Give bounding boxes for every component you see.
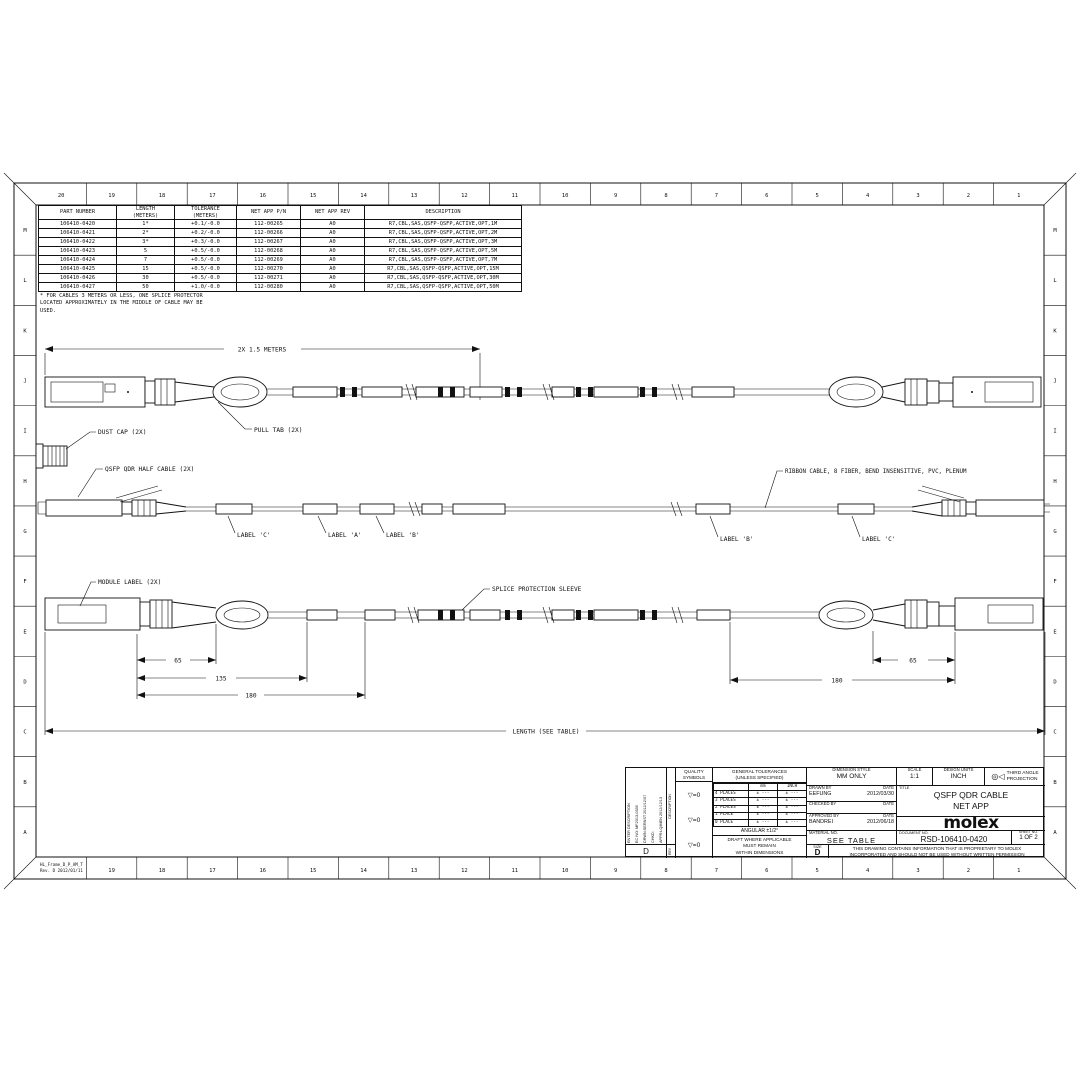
- title-cell: TITLE QSFP QDR CABLE NET APP: [896, 785, 1045, 816]
- label-c-right: LABEL 'C': [862, 536, 896, 543]
- zone-number: 1: [1017, 868, 1020, 874]
- table-cell: R7,CBL,SAS,QSFP-QSFP,ACTIVE,OPT,1M: [365, 220, 522, 229]
- table-cell: +0.5/-0.0: [175, 274, 237, 283]
- zone-letter: G: [1053, 529, 1056, 535]
- dimension-style-value: MM ONLY: [807, 773, 896, 780]
- qsfp-connector-right: [819, 598, 1043, 630]
- design-units-cell: DESIGN UNITS INCH: [932, 768, 984, 785]
- table-cell: +0.3/-0.0: [175, 238, 237, 247]
- table-row: 106410-042750+1.0/-0.0112-00280A0R7,CBL,…: [39, 283, 522, 292]
- table-cell: +1.0/-0.0: [175, 283, 237, 292]
- approved-by-cell: APPROVED BYDATE BANDREI2012/06/18: [806, 813, 896, 830]
- splice-protector-note: * FOR CABLES 3 METERS OR LESS, ONE SPLIC…: [40, 293, 203, 315]
- label-c-left: LABEL 'C': [237, 532, 271, 539]
- tolerance-col-mm: mm: [749, 784, 778, 791]
- table-row: 106410-04201*+0.1/-0.0112-00265A0R7,CBL,…: [39, 220, 522, 229]
- rev-enter-description: ENTER DESCRIPTION: [628, 769, 632, 843]
- table-row: 3 PLACES± ---± ---: [714, 798, 807, 805]
- zone-number: 7: [715, 193, 718, 199]
- table-cell: ± ---: [749, 791, 778, 798]
- table-cell: 106410-0426: [39, 274, 117, 283]
- zone-number: 17: [209, 868, 216, 874]
- table-cell: 1*: [117, 220, 175, 229]
- drawing-sheet: HL_Frame_D_P_AM_T Rev. D 2012/01/11 2019…: [0, 0, 1080, 1080]
- drawn-by-cell: DRAWN BYDATE EEFUNG2012/03/30: [806, 785, 896, 801]
- zone-letter: J: [23, 379, 26, 385]
- proprietary-note: THIS DRAWING CONTAINS INFORMATION THAT I…: [828, 844, 1045, 858]
- qsfp-connector-right: [829, 377, 1041, 407]
- quality-symbol: ▽=0: [688, 791, 700, 799]
- table-row: 106410-04223*+0.3/-0.0112-00267A0R7,CBL,…: [39, 238, 522, 247]
- dim-135: 135: [215, 676, 226, 683]
- table-cell: 106410-0427: [39, 283, 117, 292]
- molex-logo: molex: [896, 816, 1045, 830]
- zone-letter: C: [1053, 730, 1056, 736]
- zone-letter: E: [23, 629, 26, 635]
- dim-2x-1p5-meters: 2X 1.5 METERS: [238, 347, 287, 354]
- table-cell: A0: [301, 247, 365, 256]
- rev-drwn: DRWN:SERNST 2012/12/07: [644, 769, 648, 843]
- zone-number: 6: [765, 868, 768, 874]
- view-mid-half-cables: QSFP QDR HALF CABLE (2X) RIBBON CABLE, 8…: [38, 466, 1050, 543]
- dust-cap: [36, 444, 67, 468]
- table-cell: 106410-0420: [39, 220, 117, 229]
- document-no-value: RSD-106410-0420: [897, 835, 1011, 844]
- date-label: DATE: [883, 802, 894, 807]
- drawing-svg: HL_Frame_D_P_AM_T Rev. D 2012/01/11 2019…: [0, 0, 1080, 1080]
- approved-date: 2012/06/18: [867, 819, 894, 825]
- zone-letter: M: [23, 228, 27, 234]
- zone-letter: B: [23, 780, 27, 786]
- zone-number: 11: [511, 868, 518, 874]
- zone-number: 2: [967, 868, 970, 874]
- zone-number: 16: [259, 193, 266, 199]
- zone-number: 2: [967, 193, 970, 199]
- table-cell: A0: [301, 283, 365, 292]
- quality-symbols: ▽=0 ▽=0 ▽=0: [675, 781, 712, 858]
- table-cell: 106410-0422: [39, 238, 117, 247]
- table-cell: ± ---: [749, 812, 778, 819]
- zone-letter: K: [1053, 328, 1057, 334]
- module-label-callout: MODULE LABEL (2X): [98, 579, 161, 586]
- zone-letter: C: [23, 730, 26, 736]
- zone-number: 20: [58, 193, 65, 199]
- table-cell: 106410-0425: [39, 265, 117, 274]
- table-cell: 112-00265: [237, 220, 301, 229]
- quality-symbol: ▽=0: [688, 816, 700, 824]
- zone-number: 10: [562, 868, 569, 874]
- qsfp-connector-left: [45, 598, 268, 630]
- zone-number: 5: [816, 868, 819, 874]
- dim-180-right: 180: [831, 678, 842, 685]
- table-row: 106410-04235+0.5/-0.0112-00268A0R7,CBL,S…: [39, 247, 522, 256]
- zone-number: 8: [664, 868, 667, 874]
- half-cable-label: QSFP QDR HALF CABLE (2X): [105, 466, 194, 473]
- material-no-cell: MATERIAL NO. SEE TABLE: [806, 830, 896, 844]
- zone-letter: A: [23, 830, 27, 836]
- projection-cell: ◎◁ THIRD ANGLE PROJECTION: [984, 768, 1045, 785]
- quality-symbols-header: QUALITY SYMBOLS: [675, 768, 712, 781]
- zone-letter: A: [1053, 830, 1057, 836]
- tolerances-body: 4 PLACES± ---± ---3 PLACES± ---± ---2 PL…: [714, 791, 807, 826]
- zone-letter: I: [1053, 429, 1056, 435]
- zone-letter: D: [23, 679, 26, 685]
- label-b-right: LABEL 'B': [720, 536, 754, 543]
- parts-table-header-row: PART NUMBER LENGTH (METERS) TOLERANCE (M…: [39, 206, 522, 220]
- projection-label: THIRD ANGLE PROJECTION: [1007, 771, 1039, 782]
- table-cell: +0.2/-0.0: [175, 229, 237, 238]
- rev-ec-no: EC NO: MF2013-0339: [636, 769, 640, 843]
- table-cell: R7,CBL,SAS,QSFP-QSFP,ACTIVE,OPT,50M: [365, 283, 522, 292]
- table-cell: ± ---: [749, 805, 778, 812]
- zone-number: 1: [1017, 193, 1020, 199]
- dust-cap-label: DUST CAP (2X): [98, 429, 146, 436]
- table-cell: R7,CBL,SAS,QSFP-QSFP,ACTIVE,OPT,2M: [365, 229, 522, 238]
- zone-letter: F: [23, 579, 26, 585]
- table-cell: 4 PLACES: [714, 791, 749, 798]
- zone-number: 10: [562, 193, 569, 199]
- table-cell: 5: [117, 247, 175, 256]
- col-description: DESCRIPTION: [365, 206, 522, 220]
- description-column: DESCRIPTION: [666, 768, 675, 844]
- table-cell: R7,CBL,SAS,QSFP-QSFP,ACTIVE,OPT,3M: [365, 238, 522, 247]
- zone-number: 11: [511, 193, 518, 199]
- parts-table-body: 106410-04201*+0.1/-0.0112-00265A0R7,CBL,…: [39, 220, 522, 292]
- drawn-by-name: EEFUNG: [809, 791, 831, 797]
- half-cable-connector-left: [38, 486, 186, 516]
- table-cell: A0: [301, 238, 365, 247]
- zone-letter: J: [1053, 379, 1056, 385]
- table-cell: 112-00268: [237, 247, 301, 256]
- table-cell: 7: [117, 256, 175, 265]
- col-length: LENGTH (METERS): [117, 206, 175, 220]
- zone-letter: K: [23, 328, 27, 334]
- rev-appr: APPR:LQIMEN 2012/12/13: [660, 769, 664, 843]
- table-row: 2 PLACES± ---± ---: [714, 805, 807, 812]
- document-no-cell: DOCUMENT NO. RSD-106410-0420: [896, 830, 1011, 844]
- zone-number: 3: [916, 193, 919, 199]
- pull-tab-label: PULL TAB (2X): [254, 427, 302, 434]
- zone-letter: L: [23, 278, 27, 284]
- table-cell: 15: [117, 265, 175, 274]
- table-cell: A0: [301, 265, 365, 274]
- rev-column: REV: [666, 844, 675, 858]
- description-label: DESCRIPTION: [669, 794, 673, 819]
- col-part-number: PART NUMBER: [39, 206, 117, 220]
- tolerances-table: mm INCH 4 PLACES± ---± ---3 PLACES± ---±…: [712, 782, 806, 826]
- zone-letter: G: [23, 529, 26, 535]
- dim-length-see-table: LENGTH (SEE TABLE): [512, 729, 579, 736]
- view-bottom-dimensioned: MODULE LABEL (2X) SPLICE PROTECTION SLEE…: [45, 579, 1045, 736]
- zone-number: 6: [765, 193, 768, 199]
- zone-number: 18: [159, 868, 166, 874]
- angular-tolerance: ANGULAR ±1/2°: [712, 826, 806, 835]
- dim-180-left: 180: [245, 693, 256, 700]
- zone-number: 16: [259, 868, 266, 874]
- table-cell: 2 PLACES: [714, 805, 749, 812]
- dim-65-left: 65: [174, 658, 182, 665]
- table-row: 106410-04212*+0.2/-0.0112-00266A0R7,CBL,…: [39, 229, 522, 238]
- quality-symbol: ▽=0: [688, 841, 700, 849]
- zone-letter: B: [1053, 780, 1057, 786]
- scale-cell: SCALE 1:1: [896, 768, 932, 785]
- col-net-app-rev: NET APP REV: [301, 206, 365, 220]
- table-cell: 112-00269: [237, 256, 301, 265]
- checked-by-label: CHECKED BY: [809, 802, 836, 807]
- table-cell: ± ---: [778, 791, 807, 798]
- frame-ref: HL_Frame_D_P_AM_T: [40, 862, 83, 867]
- table-cell: R7,CBL,SAS,QSFP-QSFP,ACTIVE,OPT,7M: [365, 256, 522, 265]
- table-cell: A0: [301, 220, 365, 229]
- zone-number: 3: [916, 868, 919, 874]
- table-cell: ± ---: [749, 798, 778, 805]
- table-cell: 2*: [117, 229, 175, 238]
- view-top-cable-assembly: 2X 1.5 METERS: [36, 347, 1041, 469]
- table-cell: 50: [117, 283, 175, 292]
- tolerance-col-inch: INCH: [778, 784, 807, 791]
- zone-number: 18: [159, 193, 166, 199]
- table-cell: 112-00270: [237, 265, 301, 274]
- zone-letter: E: [1053, 629, 1056, 635]
- zone-number: 19: [108, 193, 115, 199]
- tolerances-header-row: mm INCH: [714, 784, 807, 791]
- zone-letter: H: [23, 479, 26, 485]
- qsfp-connector-left: [45, 377, 267, 407]
- material-no-value: SEE TABLE: [807, 836, 896, 844]
- table-cell: +0.5/-0.0: [175, 256, 237, 265]
- scale-value: 1:1: [897, 773, 932, 780]
- table-cell: A0: [301, 274, 365, 283]
- zone-number: 13: [411, 868, 418, 874]
- sheet-no-value: 1 OF 2: [1012, 835, 1045, 841]
- table-cell: 112-00271: [237, 274, 301, 283]
- zone-letter: L: [1053, 278, 1057, 284]
- zone-number: 12: [461, 868, 468, 874]
- dim-65-right: 65: [909, 658, 917, 665]
- table-cell: ± ---: [778, 805, 807, 812]
- zone-number: 14: [360, 868, 367, 874]
- zone-number: 5: [816, 193, 819, 199]
- table-cell: +0.5/-0.0: [175, 265, 237, 274]
- col-tolerance: TOLERANCE (METERS): [175, 206, 237, 220]
- third-angle-projection-icon: ◎◁: [991, 772, 1004, 781]
- rev-label: REV: [669, 848, 672, 855]
- size-value: D: [807, 849, 828, 857]
- label-b-left: LABEL 'B': [386, 532, 420, 539]
- table-cell: 106410-0424: [39, 256, 117, 265]
- table-cell: 112-00267: [237, 238, 301, 247]
- ribbon-cable-label: RIBBON CABLE, 8 FIBER, BEND INSENSITIVE,…: [785, 469, 967, 475]
- table-cell: +0.1/-0.0: [175, 220, 237, 229]
- table-cell: R7,CBL,SAS,QSFP-QSFP,ACTIVE,OPT,30M: [365, 274, 522, 283]
- revision-block: ENTER DESCRIPTION EC NO: MF2013-0339 DRW…: [626, 768, 666, 844]
- design-units-value: INCH: [933, 773, 984, 780]
- table-cell: 3 PLACES: [714, 798, 749, 805]
- zone-number: 9: [614, 193, 617, 199]
- parts-table: PART NUMBER LENGTH (METERS) TOLERANCE (M…: [38, 205, 522, 292]
- table-cell: A0: [301, 256, 365, 265]
- dimension-style-cell: DIMENSION STYLE MM ONLY: [806, 768, 896, 785]
- zone-number: 4: [866, 193, 870, 199]
- label-a: LABEL 'A': [328, 532, 362, 539]
- zone-number: 8: [664, 193, 667, 199]
- zone-letter: H: [1053, 479, 1056, 485]
- zone-number: 14: [360, 193, 367, 199]
- table-cell: 112-00266: [237, 229, 301, 238]
- table-row: 106410-042515+0.5/-0.0112-00270A0R7,CBL,…: [39, 265, 522, 274]
- zone-number: 4: [866, 868, 870, 874]
- approved-by-name: BANDREI: [809, 819, 833, 825]
- zone-number: 19: [108, 868, 115, 874]
- half-cable-connector-right: [912, 486, 1050, 516]
- rev-letter: D: [626, 844, 666, 858]
- table-row: 1 PLACE± ---± ---: [714, 812, 807, 819]
- table-row: 106410-04247+0.5/-0.0112-00269A0R7,CBL,S…: [39, 256, 522, 265]
- table-cell: R7,CBL,SAS,QSFP-QSFP,ACTIVE,OPT,5M: [365, 247, 522, 256]
- table-cell: R7,CBL,SAS,QSFP-QSFP,ACTIVE,OPT,15M: [365, 265, 522, 274]
- zone-letter: F: [1053, 579, 1056, 585]
- tolerance-blank: [714, 784, 749, 791]
- drawing-title: QSFP QDR CABLE NET APP: [897, 790, 1045, 811]
- table-cell: ± ---: [778, 812, 807, 819]
- zone-number: 7: [715, 868, 718, 874]
- zone-number: 13: [411, 193, 418, 199]
- table-cell: 106410-0421: [39, 229, 117, 238]
- zone-number: 15: [310, 193, 317, 199]
- col-net-app-pn: NET APP P/N: [237, 206, 301, 220]
- table-cell: 106410-0423: [39, 247, 117, 256]
- zone-number: 15: [310, 868, 317, 874]
- drawn-date: 2012/03/30: [867, 791, 894, 797]
- zone-number: 12: [461, 193, 468, 199]
- general-tolerances-header: GENERAL TOLERANCES (UNLESS SPECIFIED): [712, 768, 806, 782]
- table-cell: 3*: [117, 238, 175, 247]
- zone-letter: M: [1053, 228, 1057, 234]
- zone-letter: I: [23, 429, 26, 435]
- zone-number: 17: [209, 193, 216, 199]
- table-cell: ± ---: [778, 798, 807, 805]
- table-row: 106410-042630+0.5/-0.0112-00271A0R7,CBL,…: [39, 274, 522, 283]
- draft-note: DRAFT WHERE APPLICABLE MUST REMAIN WITHI…: [712, 835, 806, 858]
- size-cell: SIZE D: [806, 844, 828, 858]
- rev-chkd: CHKD:: [652, 769, 656, 843]
- title-block: ENTER DESCRIPTION EC NO: MF2013-0339 DRW…: [625, 767, 1044, 857]
- checked-by-cell: CHECKED BYDATE: [806, 801, 896, 813]
- zone-number: 9: [614, 868, 617, 874]
- table-cell: 30: [117, 274, 175, 283]
- table-cell: A0: [301, 229, 365, 238]
- frame-rev: Rev. D 2012/01/11: [40, 868, 83, 873]
- zone-letter: D: [1053, 679, 1056, 685]
- table-cell: +0.5/-0.0: [175, 247, 237, 256]
- splice-sleeve-callout: SPLICE PROTECTION SLEEVE: [492, 586, 582, 593]
- table-cell: 112-00280: [237, 283, 301, 292]
- table-cell: 1 PLACE: [714, 812, 749, 819]
- table-row: 4 PLACES± ---± ---: [714, 791, 807, 798]
- sheet-no-cell: SHEET NO. 1 OF 2: [1011, 830, 1045, 844]
